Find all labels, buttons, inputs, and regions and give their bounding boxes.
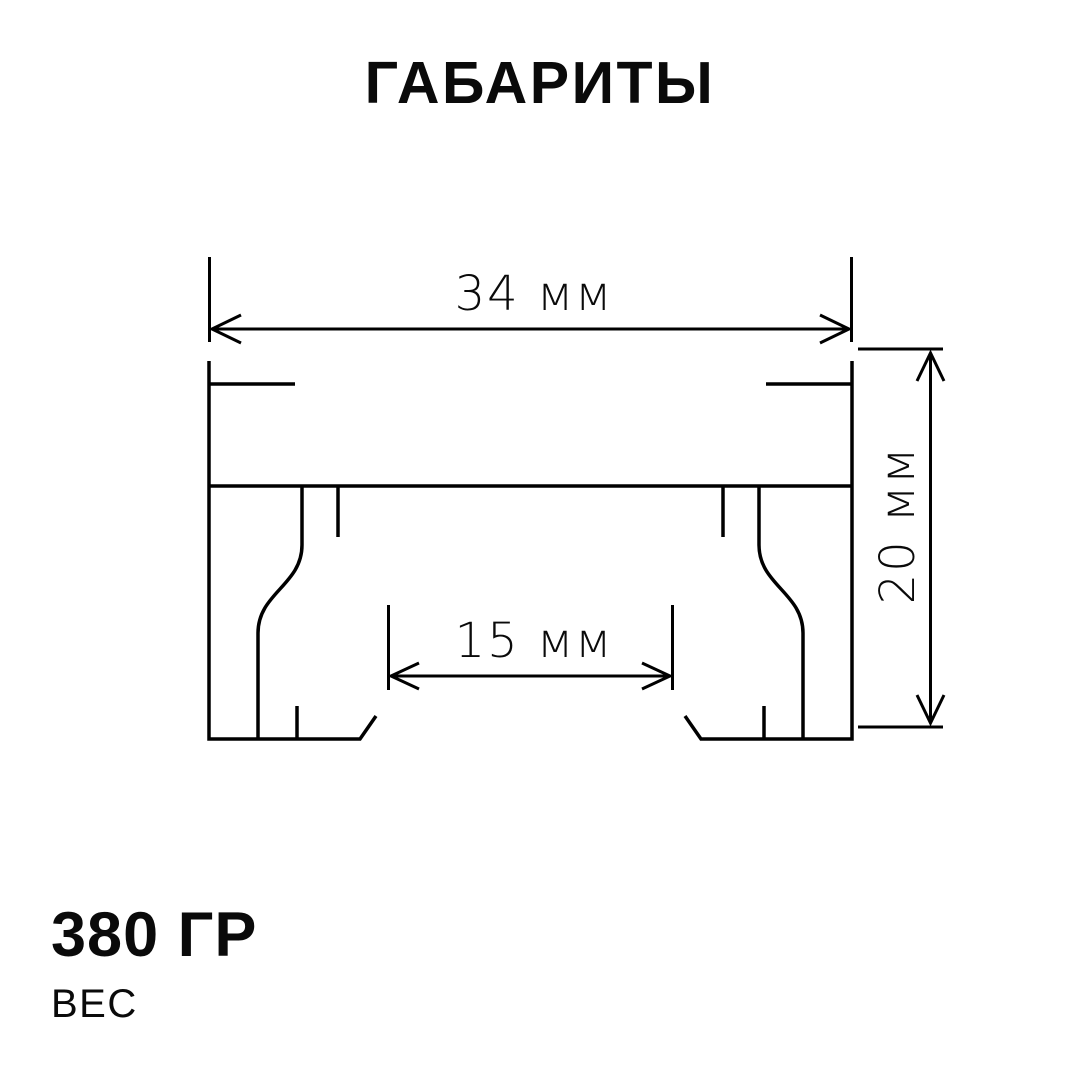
weight-value: 380 ГР bbox=[51, 904, 257, 967]
dim-inner-label: 15 мм bbox=[455, 613, 614, 669]
profile-left-leg-curve bbox=[258, 486, 302, 739]
profile-right-wall-and-foot bbox=[685, 361, 852, 739]
weight-label: ВЕС bbox=[51, 984, 257, 1024]
profile-left-wall-and-foot bbox=[209, 361, 376, 739]
profile-right-leg-curve bbox=[759, 486, 803, 739]
profile-outline bbox=[209, 361, 852, 739]
dim-height-label: 20 мм bbox=[870, 446, 926, 605]
dim-width-label: 34 мм bbox=[455, 266, 614, 322]
weight-block: 380 ГР ВЕС bbox=[51, 904, 257, 1024]
